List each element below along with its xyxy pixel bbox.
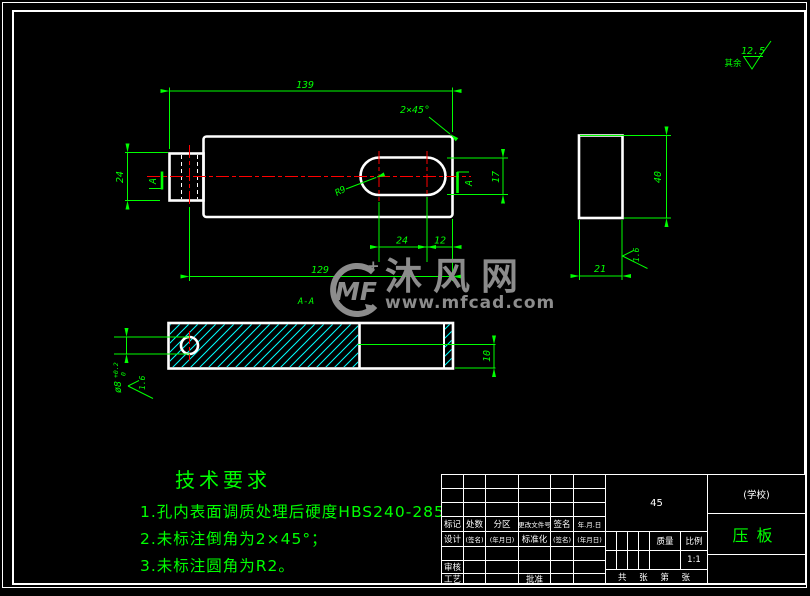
roughness-side: 1.6 [623, 247, 648, 268]
chamfer-note: 2×45° [400, 105, 450, 134]
tb-empty-cell [442, 489, 464, 503]
dim-text-24b: 24 [396, 236, 408, 247]
tb-empty-cell [486, 561, 519, 574]
tb-empty-cell [606, 551, 617, 569]
watermark-site-name: 沐风网 [385, 257, 555, 298]
dim-text-12: 12 [434, 236, 446, 247]
dim-text-hole: ø8 [113, 381, 124, 393]
tb-empty-cell [639, 532, 650, 550]
roughness-main-value: 12.5 [741, 46, 765, 57]
tb-empty-cell [486, 547, 519, 561]
watermark-url: www.mfcad.com [385, 293, 555, 313]
tb-empty-cell [442, 547, 464, 561]
tb-label-signname: (签名) [551, 532, 574, 547]
tech-requirement-item: 3.未标注圆角为R2。 [140, 553, 451, 580]
tb-empty-cell [464, 547, 486, 561]
tb-empty-cell [639, 551, 650, 569]
tb-part-name: 压板 [708, 514, 805, 555]
tb-empty-cell [551, 489, 574, 503]
tech-requirements: 技术要求 1.孔内表面调质处理后硬度HBS240-285; 2.未标注倒角为2×… [140, 464, 451, 580]
tb-empty-cell [574, 574, 605, 583]
section-letter: A [464, 180, 475, 187]
section-mark-left: A [148, 172, 163, 190]
logo-sparkle: + [367, 257, 380, 275]
tb-empty-cell [574, 547, 605, 561]
tb-empty-cell [442, 475, 464, 489]
tb-label-mass: 质量 [650, 532, 681, 550]
dim-text-10: 10 [482, 350, 493, 362]
tb-mass-scale-row: 质量 比例 [606, 532, 707, 551]
tb-scale-value: 1:1 [681, 551, 707, 569]
tb-label-changefile: 更改文件号 [519, 517, 551, 532]
cad-screenshot: { "colors": { "background": "#000000", "… [0, 0, 810, 596]
tb-empty-cell [574, 489, 605, 503]
tb-empty-cell [574, 503, 605, 517]
tb-empty-cell [486, 475, 519, 489]
tech-requirements-title: 技术要求 [175, 464, 451, 493]
dim-text-24: 24 [115, 171, 126, 183]
tb-empty-cell [464, 475, 486, 489]
title-block: 标记 处数 分区 更改文件号 签名 年.月.日 设计 (签名) (年月日) 标准… [441, 474, 806, 584]
tb-label-zone: 分区 [486, 517, 519, 532]
dim-24-left: 24 [115, 153, 168, 201]
tb-empty-cell [464, 574, 486, 583]
title-block-middle: 45 质量 比例 1:1 共 张 第 张 [606, 475, 708, 583]
tb-school: (学校) [708, 475, 805, 514]
default-roughness: 其余 12.5 [724, 41, 771, 69]
roughness-value: 1.6 [632, 247, 641, 262]
tb-empty-cell [606, 532, 617, 550]
slot-radius-note: R9 [334, 178, 376, 199]
chamfer-text: 2×45° [400, 105, 430, 116]
tb-sheets: 共 张 第 张 [606, 570, 707, 583]
tb-label-approve: 批准 [519, 574, 551, 583]
dim-text-17: 17 [491, 171, 502, 183]
mfcad-logo: MF + [321, 257, 385, 319]
dim-text-40: 40 [653, 171, 664, 183]
tb-scale-value-row: 1:1 [606, 551, 707, 570]
tb-empty-cell [551, 547, 574, 561]
tb-empty-cell [628, 532, 639, 550]
tb-empty-cell [442, 503, 464, 517]
tb-empty-cell [551, 475, 574, 489]
section-label: A-A [297, 297, 314, 307]
tb-label-dateparen: (年月日) [486, 532, 519, 547]
tb-empty-cell [574, 561, 605, 574]
tb-empty-cell [464, 503, 486, 517]
tb-empty-cell [628, 551, 639, 569]
tb-empty-cell [519, 503, 551, 517]
tb-label-signname: (签名) [464, 532, 486, 547]
tb-empty-cell [574, 475, 605, 489]
tb-label-mark: 标记 [442, 517, 464, 532]
rest-label: 其余 [724, 58, 742, 69]
tb-empty-cell [519, 489, 551, 503]
tech-requirement-item: 2.未标注倒角为2×45°； [140, 526, 451, 553]
tb-label-standardize: 标准化 [519, 532, 551, 547]
section-letter: A [148, 178, 159, 185]
front-view [147, 137, 471, 218]
tb-label-check: 审核 [442, 561, 464, 574]
tb-empty-cell [519, 475, 551, 489]
tb-empty-cell [708, 555, 805, 583]
tb-empty-cell [617, 551, 628, 569]
roughness-value: 1.6 [138, 375, 147, 390]
tol-lower: 0 [120, 372, 128, 376]
tb-empty-cell [464, 489, 486, 503]
hatch-area-right [445, 325, 452, 368]
tb-empty-cell [486, 574, 519, 583]
tb-empty-cell [464, 561, 486, 574]
watermark: MF + 沐风网 www.mfcad.com [321, 257, 555, 319]
tech-requirement-item: 1.孔内表面调质处理后硬度HBS240-285; [140, 499, 451, 526]
side-outline [579, 136, 623, 219]
radius-text: R9 [334, 185, 348, 199]
logo-text: MF [335, 277, 377, 306]
tb-empty-cell [551, 503, 574, 517]
side-view: 40 21 1.6 [579, 136, 671, 281]
tb-label-count: 处数 [464, 517, 486, 532]
dim-text-21: 21 [594, 264, 606, 275]
tb-label-dateparen: (年月日) [574, 532, 605, 547]
dim-text-139: 139 [296, 80, 314, 91]
tb-label-scale: 比例 [681, 532, 707, 550]
tb-empty-cell [551, 574, 574, 583]
tb-material: 45 [606, 475, 707, 532]
tb-empty-cell [617, 532, 628, 550]
tb-empty-cell [519, 561, 551, 574]
tb-empty-cell [486, 489, 519, 503]
tb-label-design: 设计 [442, 532, 464, 547]
title-block-right: (学校) 压板 [708, 475, 805, 583]
watermark-text: 沐风网 www.mfcad.com [385, 257, 555, 313]
section-mark-right: A [457, 172, 475, 193]
tb-empty-cell [486, 503, 519, 517]
tb-empty-cell [650, 551, 681, 569]
tb-empty-cell [551, 561, 574, 574]
tb-label-process: 工艺 [442, 574, 464, 583]
tb-empty-cell [519, 547, 551, 561]
roughness-hole: 1.6 [128, 375, 153, 398]
tb-label-sign: 签名 [551, 517, 574, 532]
dim-10: 10 [358, 345, 496, 369]
title-block-revision-grid: 标记 处数 分区 更改文件号 签名 年.月.日 设计 (签名) (年月日) 标准… [442, 475, 606, 583]
tb-label-date: 年.月.日 [574, 517, 605, 532]
